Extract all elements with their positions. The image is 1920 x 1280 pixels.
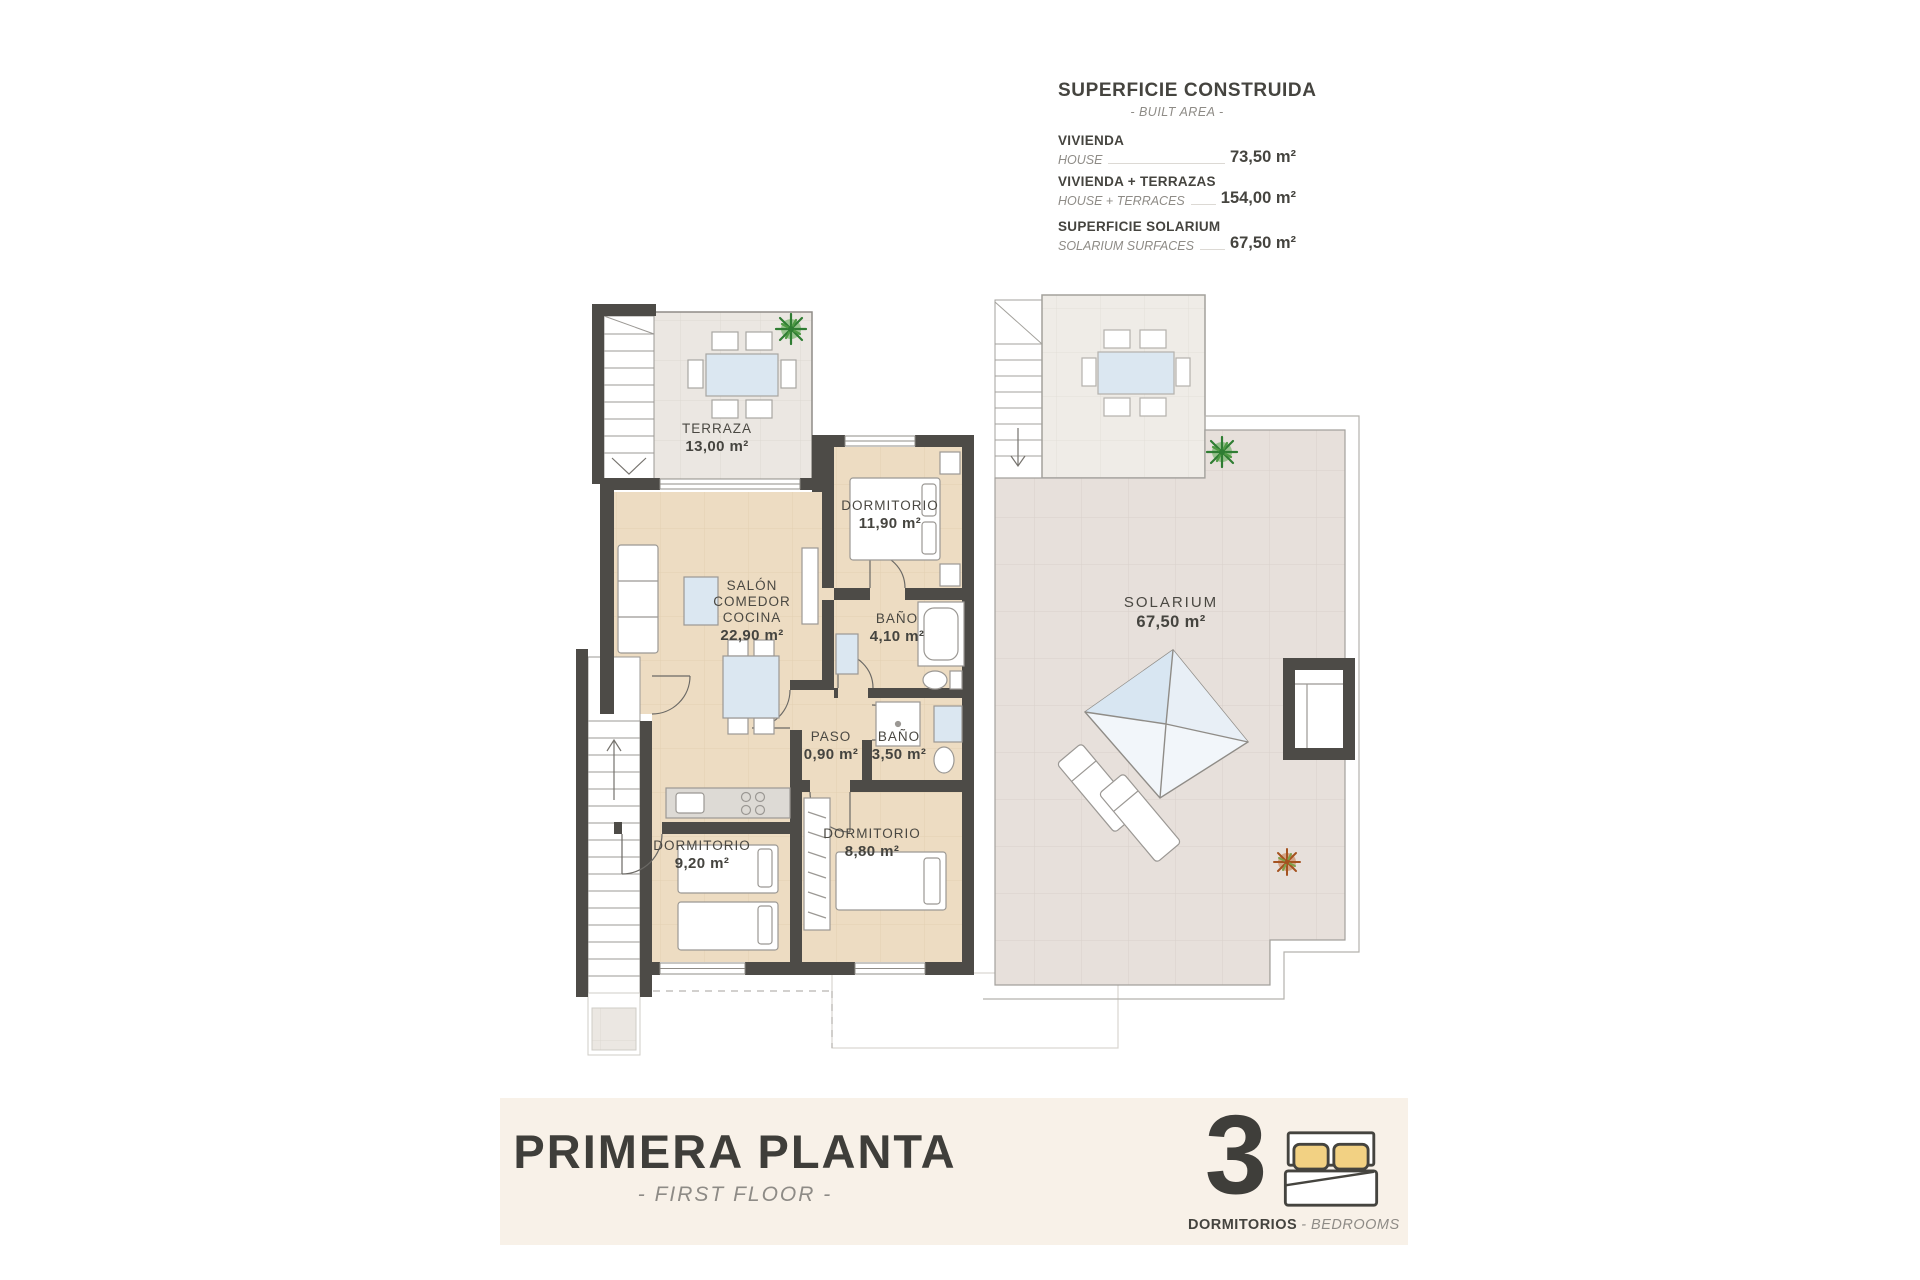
floor-plan-solarium [983, 295, 1359, 999]
room-label-terraza: TERRAZA 13,00 m² [682, 421, 752, 456]
toilet [923, 671, 947, 689]
wardrobe [804, 798, 830, 930]
room-label-paso: PASO 0,90 m² [804, 729, 859, 764]
floorplan-page: SUPERFICIE CONSTRUIDA - BUILT AREA - VIV… [0, 0, 1920, 1280]
table-row: VIVIENDA HOUSE 73,50 m² [1058, 133, 1296, 167]
page-subtitle: - FIRST FLOOR - [500, 1183, 970, 1207]
sink [934, 706, 962, 742]
table-title: SUPERFICIE CONSTRUIDA [1058, 80, 1296, 102]
bedrooms-count: 3 [1205, 1106, 1267, 1205]
table-row: VIVIENDA + TERRAZAS HOUSE + TERRACES 154… [1058, 174, 1296, 208]
room-label-solarium: SOLARIUM 67,50 m² [1124, 594, 1218, 632]
page-title: PRIMERA PLANTA [500, 1124, 970, 1179]
leader-line [1191, 204, 1216, 205]
table-row: SUPERFICIE SOLARIUM SOLARIUM SURFACES 67… [1058, 219, 1296, 253]
room-label-salon: SALÓN COMEDOR COCINA 22,90 m² [696, 578, 808, 644]
kitchen-counter [666, 788, 790, 818]
bed-icon [1281, 1130, 1381, 1213]
stair-bulkhead [1283, 658, 1355, 760]
floor-plan-drawing [0, 0, 1920, 1280]
leader-line [1108, 163, 1225, 164]
toilet [934, 747, 954, 773]
bedrooms-label: DORMITORIOS - BEDROOMS [1188, 1217, 1398, 1233]
plant-icon [776, 314, 806, 344]
plant-icon [1274, 849, 1300, 875]
built-area-table: SUPERFICIE CONSTRUIDA - BUILT AREA - VIV… [1058, 80, 1296, 260]
stairs-icon [995, 300, 1042, 478]
sofa [618, 545, 658, 653]
floor-title-block: PRIMERA PLANTA - FIRST FLOOR - [500, 1124, 970, 1207]
footer-band: PRIMERA PLANTA - FIRST FLOOR - 3 DORMITO… [500, 1098, 1408, 1245]
table-subtitle: - BUILT AREA - [1058, 105, 1296, 119]
room-label-dormitorio3: DORMITORIO 8,80 m² [823, 826, 921, 861]
room-label-bano1: BAÑO 4,10 m² [870, 611, 925, 646]
room-label-dormitorio2: DORMITORIO 9,20 m² [653, 838, 751, 873]
bedrooms-badge: 3 DORMITORIOS - BEDROOMS [1188, 1106, 1398, 1233]
room-label-dormitorio1: DORMITORIO 11,90 m² [841, 498, 939, 533]
upper-terrace [1042, 295, 1205, 478]
room-label-bano2: BAÑO 3,50 m² [872, 729, 927, 764]
leader-line [1200, 249, 1225, 250]
stairs-icon [604, 316, 654, 480]
plant-icon [1207, 437, 1237, 467]
entry-stairs-icon [588, 657, 640, 1055]
sink [836, 634, 858, 674]
